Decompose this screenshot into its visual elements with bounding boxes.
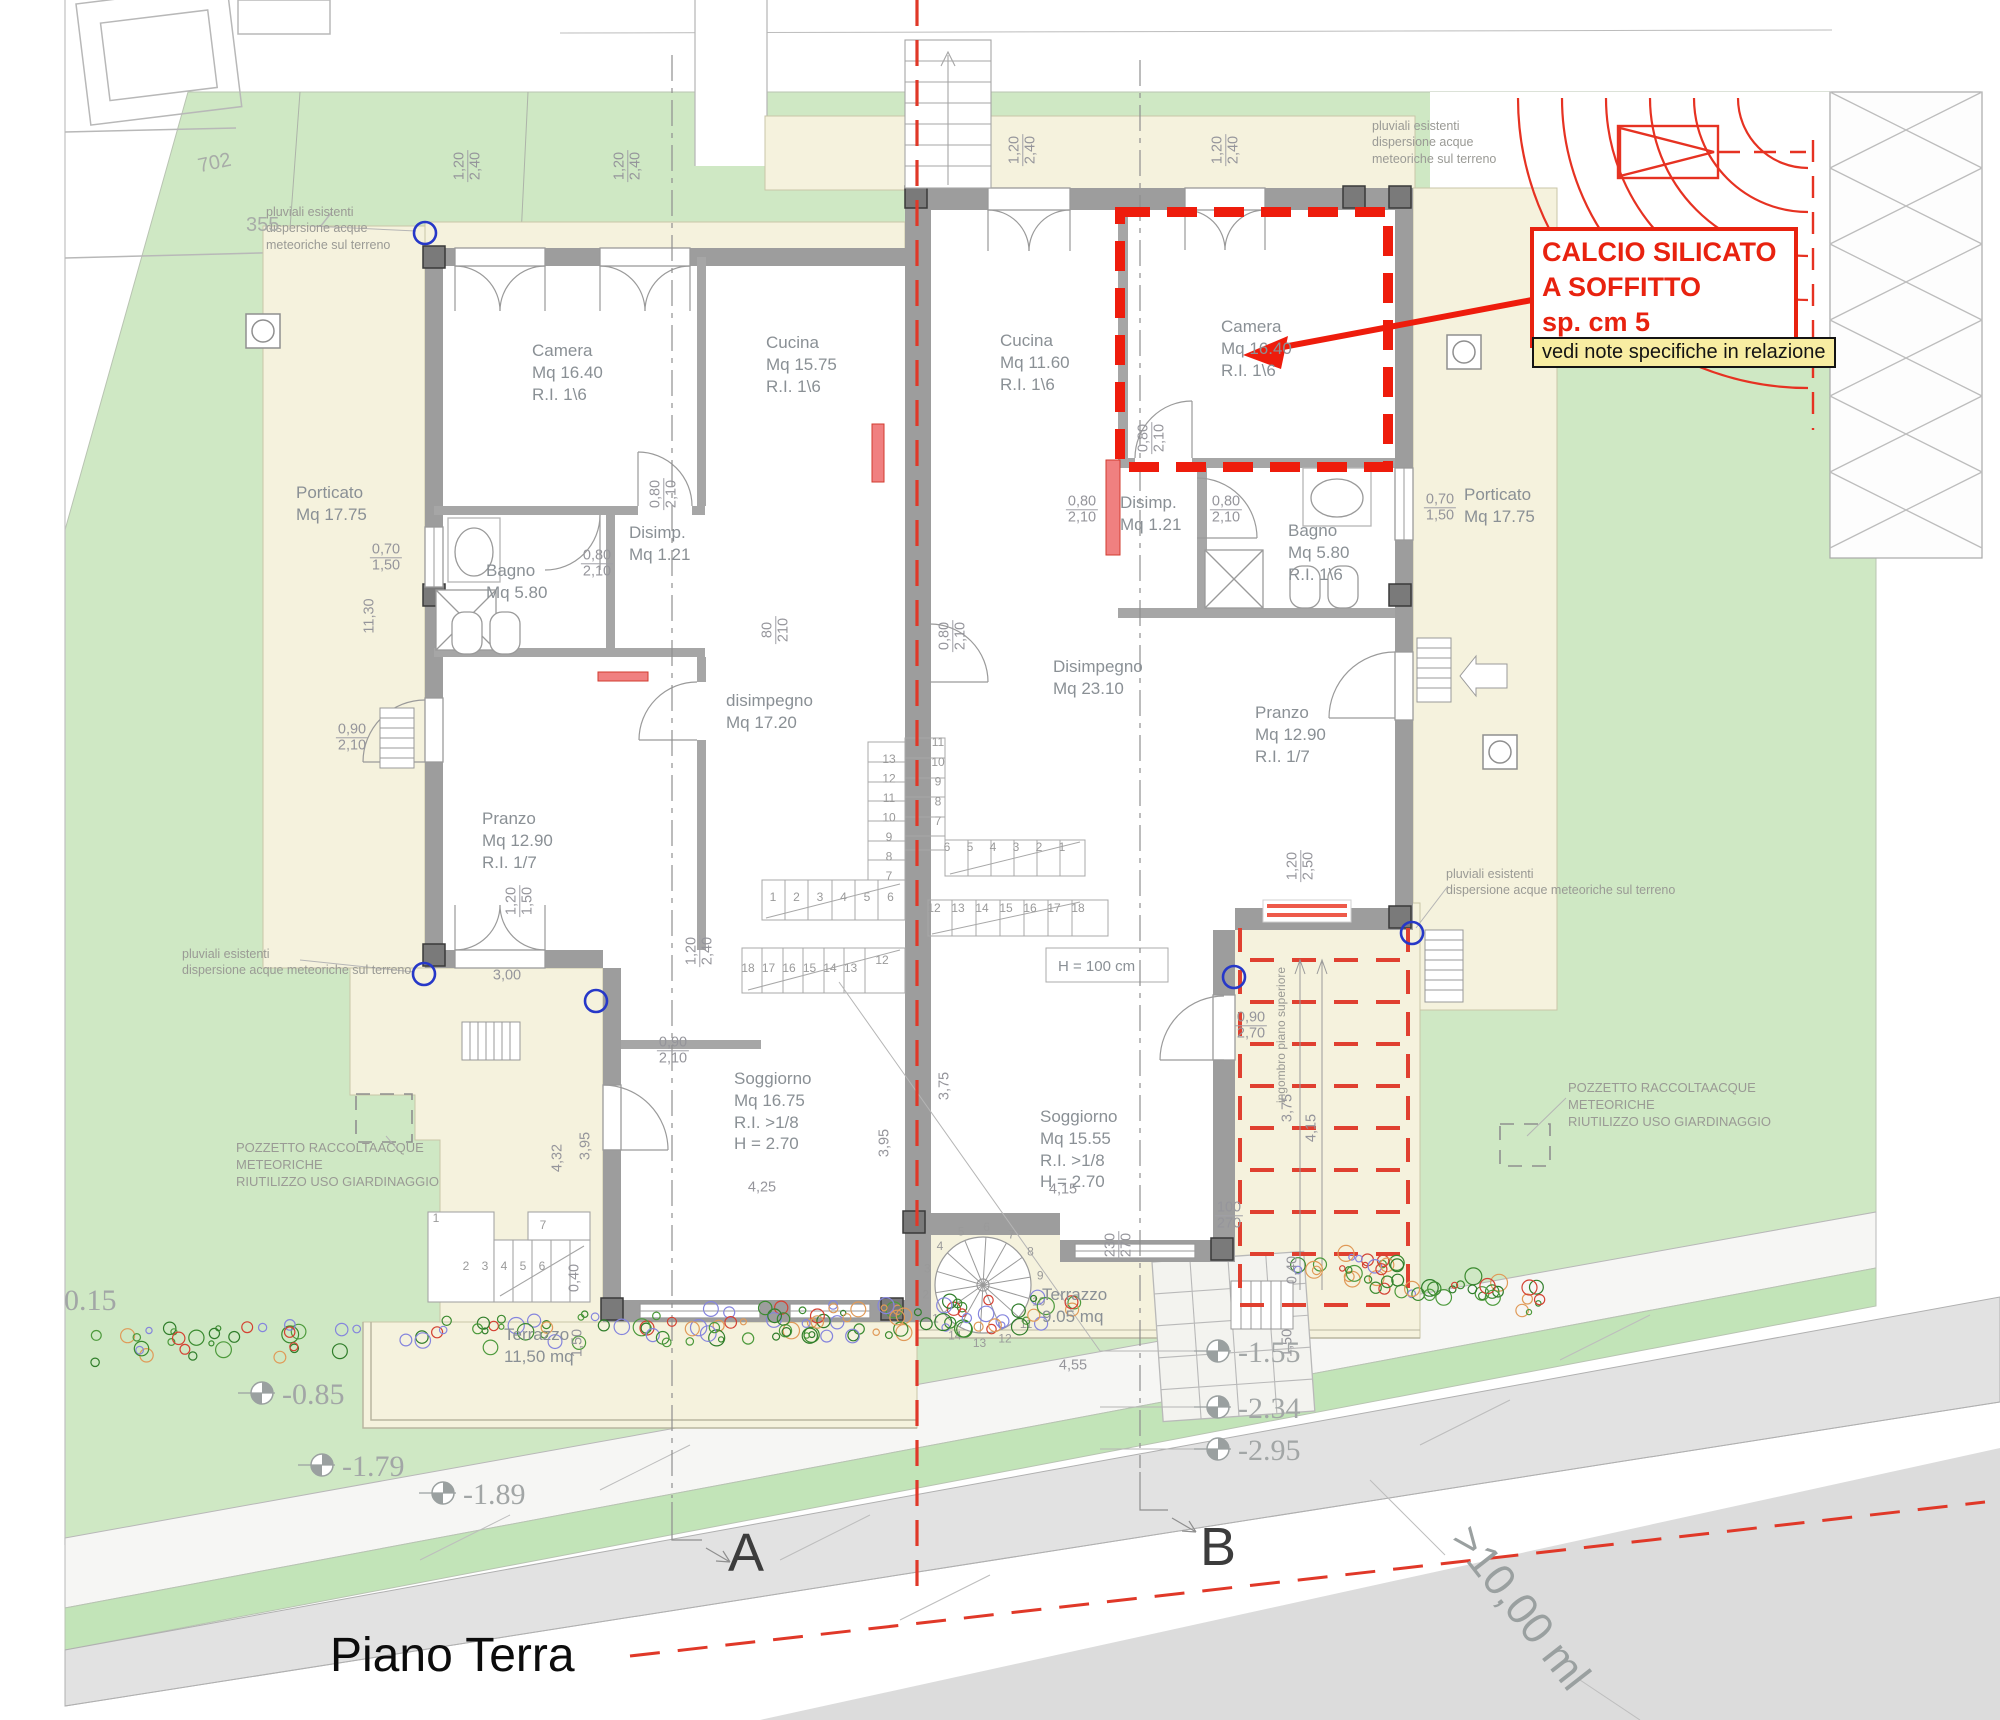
stair-number: 12 [882,772,896,786]
stair-number: 10 [882,811,896,825]
floorplan-canvas: 1234567891011121318171615141312111098765… [0,0,2000,1720]
stair-number: 6 [944,840,951,854]
spiral-number: 7 [1008,1227,1015,1241]
top-path [695,0,767,166]
stair-number: 12 [927,901,941,915]
stair-number: 7 [935,814,942,828]
stair-number: 4 [501,1259,508,1273]
stair-number: 1 [1059,840,1066,854]
spiral-number: 8 [1027,1245,1034,1259]
stair-number: 16 [782,961,796,975]
stair-number: 14 [975,901,989,915]
spiral-number: 4 [937,1239,944,1253]
stair-number: 1 [433,1211,440,1225]
stair-number: 7 [886,869,893,883]
stair-number: 6 [887,890,894,904]
stair-number: 17 [1047,901,1061,915]
stair-number: 3 [1013,840,1020,854]
spiral-number: 12 [998,1332,1012,1346]
stair-number: 4 [990,840,997,854]
stair-number: 4 [840,890,847,904]
stair-number: 18 [1071,901,1085,915]
stair-number: 11 [883,791,896,805]
stair-number: 18 [741,961,755,975]
stair-number: 5 [864,890,871,904]
stair-number: 9 [935,775,942,789]
stair-number: 2 [1036,840,1043,854]
stair-number: 2 [463,1259,470,1273]
stair-number: 15 [803,961,817,975]
spiral-number: 2 [922,1287,929,1301]
stair-number: 3 [482,1259,489,1273]
stair-number: 5 [520,1259,527,1273]
stair-number: 14 [823,961,837,975]
stair-number: 13 [844,961,858,975]
stair-number: 11 [932,735,945,749]
stair-number: 3 [817,890,824,904]
terrace-slider [1263,900,1351,922]
stair-number: 6 [539,1259,546,1273]
stair-number: 2 [793,890,800,904]
stair-number: 13 [951,901,965,915]
spiral-number: 6 [983,1220,990,1234]
stair-number: 17 [762,961,776,975]
spiral-number: 9 [1037,1269,1044,1283]
stair-number: 8 [886,850,893,864]
stair-number: 9 [886,830,893,844]
crosshatch-strip [1830,92,1982,558]
stair-number: 10 [931,755,945,769]
pergola-grid [1152,1251,1315,1421]
stair-number: 13 [882,752,896,766]
stair-number: 8 [935,794,942,808]
stair-number: 12 [875,953,889,967]
stair-number: 5 [967,840,974,854]
stair-number: 15 [999,901,1013,915]
stair-number: 7 [540,1218,547,1232]
stair-number: 1 [770,890,777,904]
spiral-number: 13 [973,1336,987,1350]
spiral-number: 5 [958,1224,965,1238]
plan-drawing: 1234567891011121318171615141312111098765… [0,0,2000,1720]
spiral-number: 3 [924,1262,931,1276]
stair-number: 16 [1023,901,1037,915]
